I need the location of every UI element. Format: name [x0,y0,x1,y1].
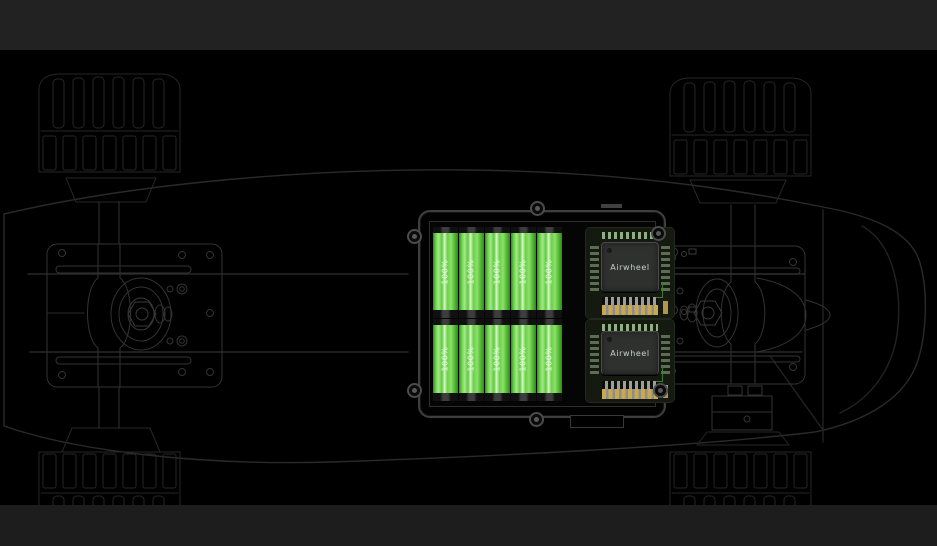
pcb-trace [656,282,663,298]
battery-compartment: 100% 100% 100% 100% [408,205,670,421]
skateboard-underside-illustration: 100% 100% 100% 100% [0,0,937,546]
battery-cell: 100% [511,227,536,318]
screw-icon [407,229,422,244]
pin-row-icon [602,232,658,239]
top-letterbox-band [0,0,937,50]
battery-charge-label: 100% [520,259,528,284]
screw-icon [530,201,545,216]
pin-slot-strip [602,297,658,305]
battery-cap [511,393,536,401]
chip-brand-label: Airwheel [610,263,649,272]
pin-row-icon [590,246,599,292]
battery-cap [433,393,458,401]
battery-cap [537,310,562,318]
battery-cap [485,310,510,318]
battery-charge-label: 100% [494,259,502,284]
chip-brand-label: Airwheel [610,349,649,358]
battery-cap [511,310,536,318]
wheel-front-left [39,74,180,202]
bottom-letterbox-band [0,505,937,546]
battery-cell: 100% [433,319,458,401]
screw-icon [407,383,422,398]
battery-cap [485,393,510,401]
battery-cell: 100% [511,319,536,401]
battery-cap [459,310,484,318]
battery-charge-label: 100% [546,259,554,284]
pcb-trace [656,366,663,382]
gold-pad [663,301,668,314]
chip-die: Airwheel [601,242,659,292]
battery-row: 100% 100% 100% 100% [433,227,562,318]
battery-charge-label: 100% [494,347,502,372]
compartment-panel: 100% 100% 100% 100% [429,221,656,407]
battery-cell: 100% [433,227,458,318]
battery-cap [459,393,484,401]
battery-charge-label: 100% [468,347,476,372]
pin-row-icon [602,324,658,331]
truck-left [47,202,222,428]
screw-icon [651,226,666,241]
battery-cell: 100% [459,227,484,318]
pin-row-icon [590,335,599,375]
battery-cell: 100% [485,319,510,401]
gold-pads [602,305,658,315]
battery-charge-label: 100% [468,259,476,284]
battery-cell: 100% [537,227,562,318]
screw-icon [529,412,544,427]
battery-cap [433,310,458,318]
chip-die: Airwheel [601,331,659,375]
battery-cap [537,393,562,401]
gold-pads [602,389,658,399]
wheel-front-right [670,78,811,203]
battery-row: 100% 100% 100% 100% [433,319,562,401]
battery-cell: 100% [459,319,484,401]
compartment-tab [570,415,624,428]
screw-icon [653,383,668,398]
compartment-label-strip [601,204,622,208]
battery-cell: 100% [537,319,562,401]
pin-slot-strip [602,381,658,389]
battery-cell: 100% [485,227,510,318]
battery-charge-label: 100% [546,347,554,372]
truck-right [658,205,830,430]
controller-board: Airwheel [585,227,675,319]
battery-charge-label: 100% [520,347,528,372]
battery-charge-label: 100% [442,259,450,284]
battery-charge-label: 100% [442,347,450,372]
